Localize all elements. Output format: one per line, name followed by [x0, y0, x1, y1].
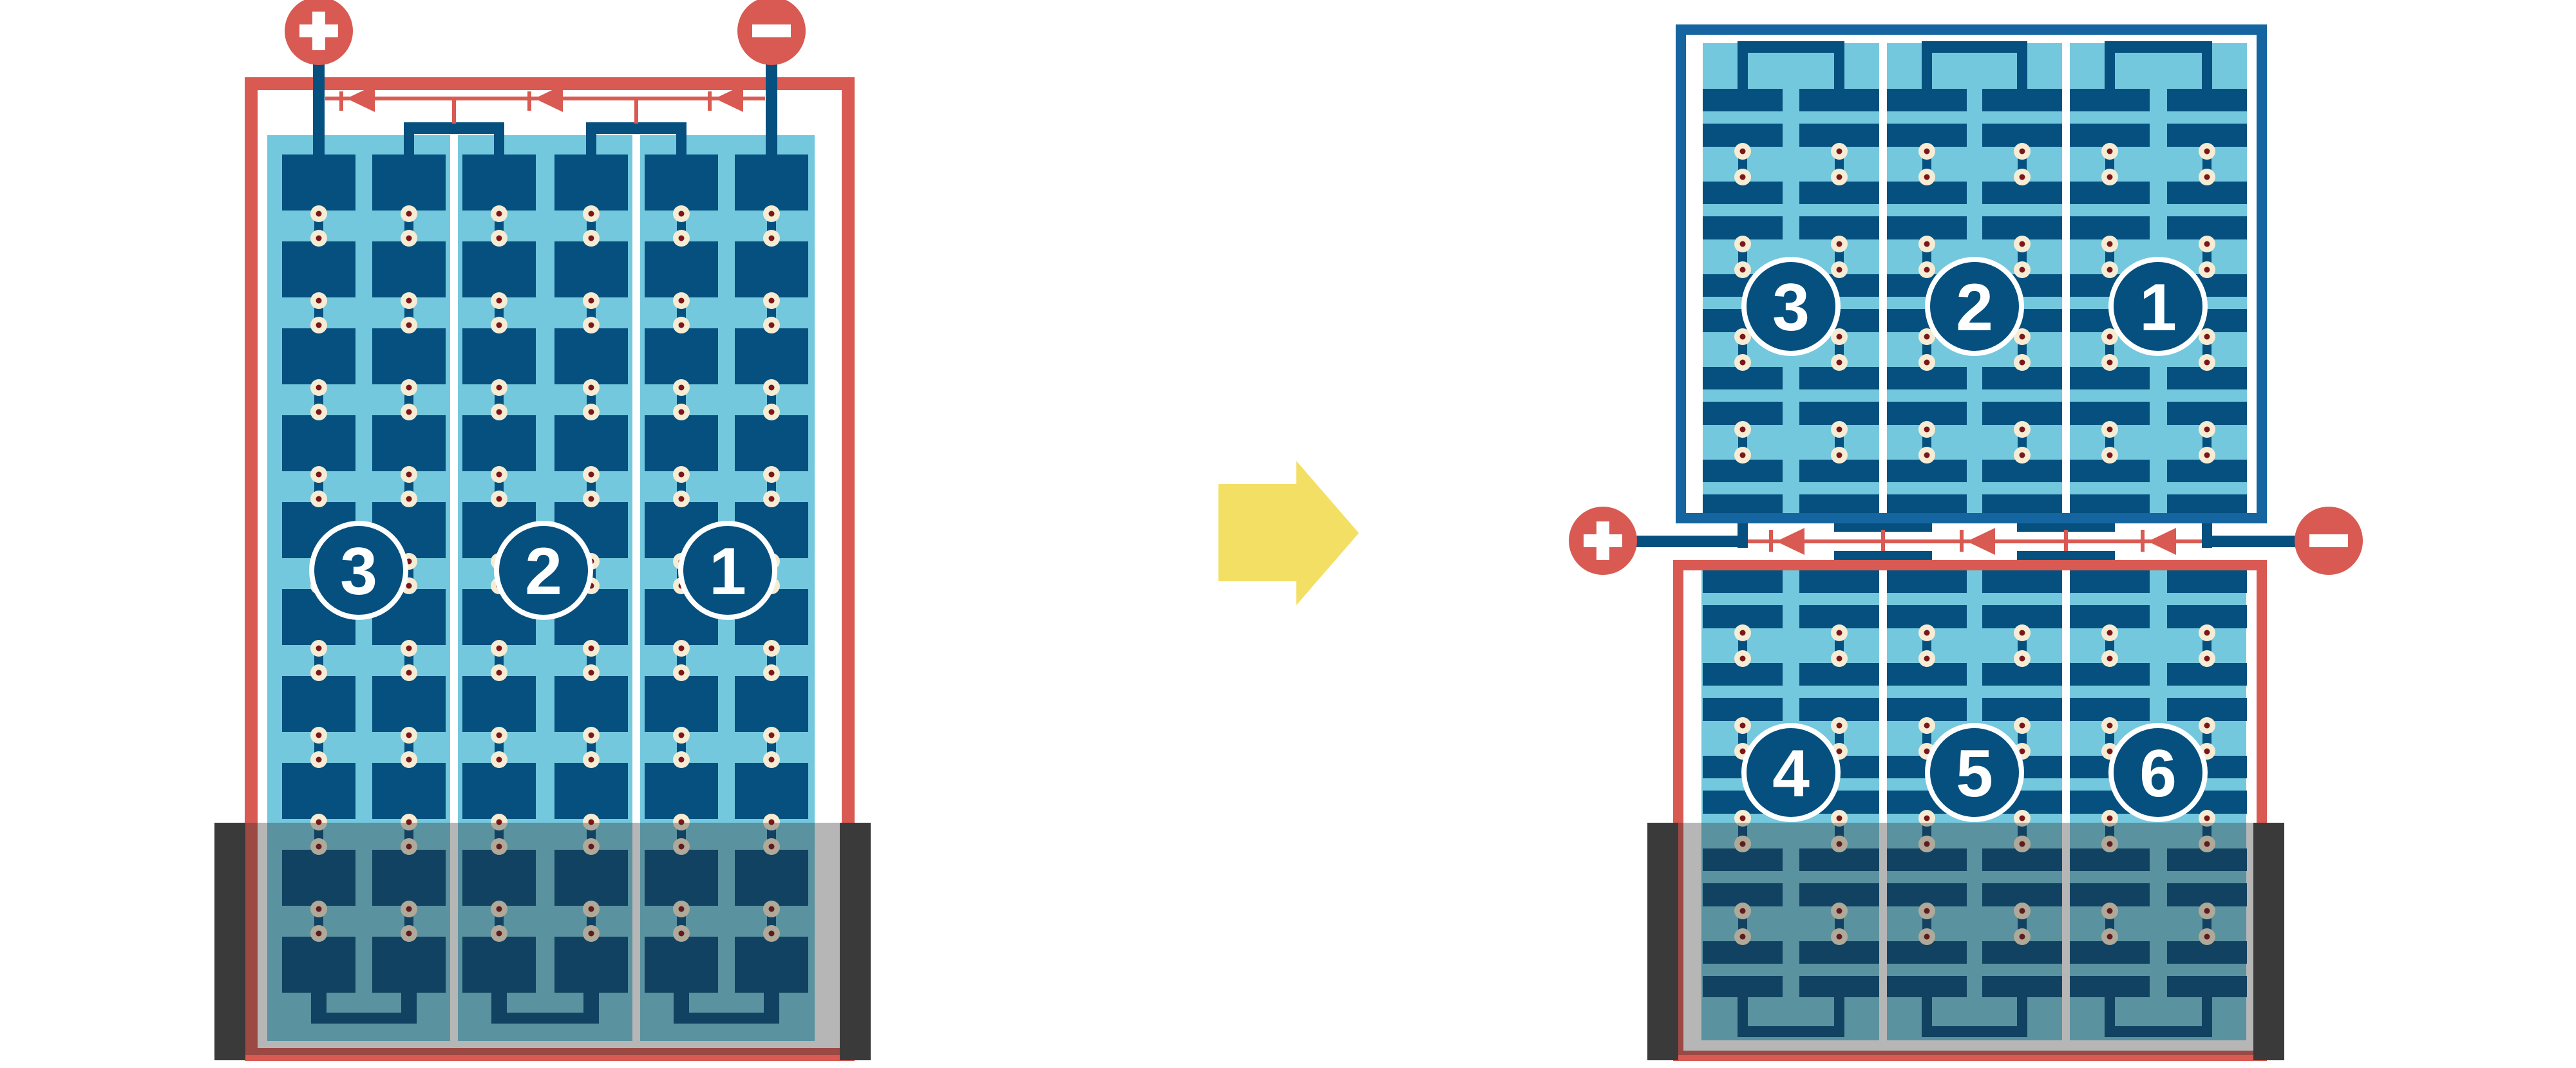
string-number-label: 1 — [2139, 270, 2177, 345]
string-divider — [2062, 43, 2070, 513]
current-flow-annotation — [1748, 528, 2202, 555]
wire-drop-link — [634, 100, 638, 124]
wire-tick — [339, 91, 343, 111]
string-number-label: 4 — [1772, 736, 1810, 811]
right-module: 3 2 1 — [1569, 24, 2363, 1061]
negative-terminal-stem — [2212, 536, 2296, 547]
wire-tick — [2141, 530, 2145, 552]
positive-terminal-icon — [285, 0, 353, 65]
wire-drop-link — [2064, 530, 2068, 552]
string-number-badge: 4 — [1744, 726, 1838, 820]
string-number-badge: 2 — [1927, 259, 2022, 353]
shade-band — [214, 823, 871, 1060]
string-number-label: 2 — [1956, 270, 1993, 345]
wire-tick — [1769, 530, 1773, 552]
negative-terminal-icon — [737, 0, 806, 65]
string-number-label: 3 — [340, 534, 377, 609]
wire-frame-top — [245, 77, 855, 90]
arrow-right-icon — [1218, 461, 1359, 605]
right-module-top-half: 3 2 1 — [1676, 24, 2267, 532]
shade-end-bar — [214, 823, 245, 1060]
wire-drop-link — [1881, 530, 1885, 552]
positive-terminal-stem — [1636, 536, 1748, 547]
string-link-tab — [1834, 551, 1932, 560]
shade-band — [1647, 823, 2284, 1060]
current-arrowhead-left-icon — [2148, 528, 2176, 555]
shade-overlay — [214, 823, 871, 1055]
negative-terminal-stem — [766, 62, 777, 156]
string-number-label: 1 — [709, 534, 746, 609]
string-number-badge: 3 — [312, 523, 406, 617]
wire-drop-link — [452, 100, 456, 124]
string-number-label: 5 — [1956, 736, 1993, 811]
current-flow-annotation — [325, 85, 765, 124]
string-number-badge: 2 — [497, 523, 591, 617]
string-number-badge: 1 — [681, 523, 775, 617]
shade-end-bar — [2253, 823, 2284, 1060]
wire-tick — [708, 91, 712, 111]
wire-tick — [527, 91, 531, 111]
string-divider — [1879, 43, 1887, 513]
negative-terminal-icon — [2295, 507, 2363, 575]
shade-end-bar — [1647, 823, 1678, 1060]
current-arrowhead-left-icon — [1967, 528, 1995, 555]
solar-module-wiring-diagram: 3 2 1 — [0, 0, 2576, 1068]
left-module: 3 2 1 — [214, 0, 871, 1061]
string-number-badge: 3 — [1744, 259, 1838, 353]
string-number-label: 3 — [1772, 270, 1810, 345]
positive-terminal-icon — [1569, 507, 1637, 575]
terminal-riser — [2202, 523, 2212, 548]
string-number-badge: 6 — [2111, 726, 2205, 820]
string-number-label: 2 — [525, 534, 562, 609]
wire-tick — [1960, 530, 1964, 552]
right-module-bottom-half: 4 5 6 — [1647, 551, 2284, 1061]
positive-terminal-stem — [313, 62, 325, 156]
string-number-label: 6 — [2139, 736, 2177, 811]
shade-overlay — [1647, 823, 2284, 1055]
string-number-badge: 1 — [2111, 259, 2205, 353]
string-link-tab — [2017, 551, 2115, 560]
current-arrowhead-left-icon — [1776, 528, 1804, 555]
string-number-badge: 5 — [1927, 726, 2022, 820]
shade-end-bar — [840, 823, 871, 1060]
